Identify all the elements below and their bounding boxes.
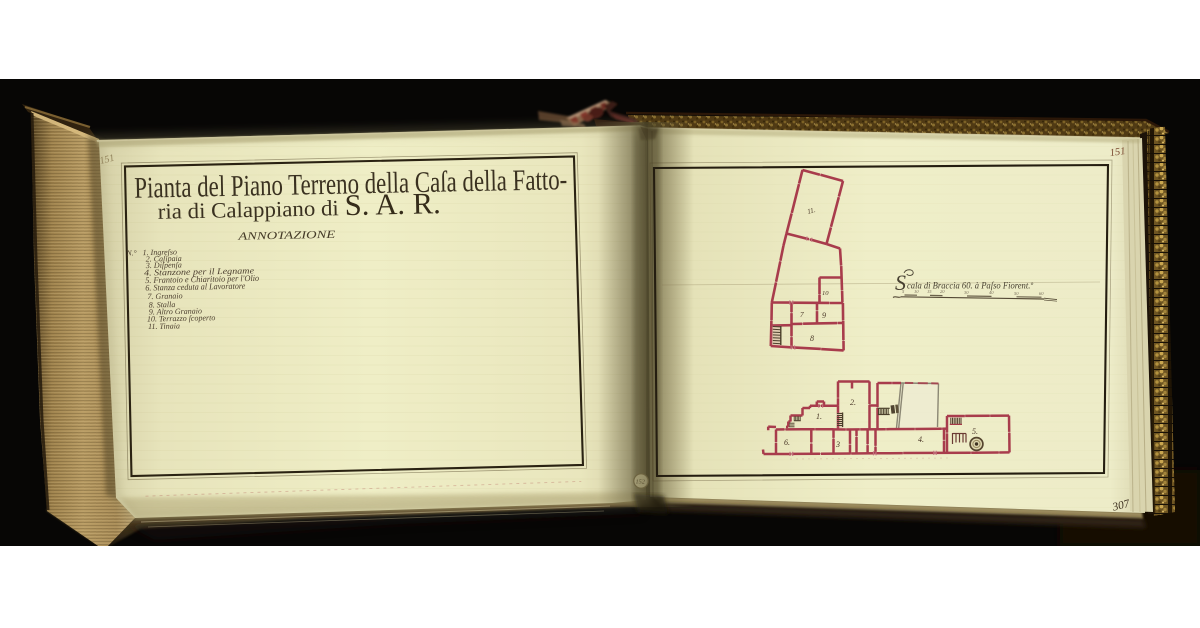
svg-text:ria di Calappiano di: ria di Calappiano di bbox=[158, 195, 339, 224]
svg-text:20: 20 bbox=[940, 289, 945, 294]
svg-text:2.: 2. bbox=[850, 398, 856, 407]
svg-text:60: 60 bbox=[1039, 291, 1044, 296]
svg-text:11. Tinaia: 11. Tinaia bbox=[148, 321, 180, 331]
svg-text:40: 40 bbox=[989, 290, 994, 295]
svg-text:8: 8 bbox=[810, 334, 814, 343]
svg-text:1.: 1. bbox=[816, 412, 822, 421]
svg-text:15: 15 bbox=[927, 289, 932, 294]
svg-text:S: S bbox=[895, 270, 906, 295]
svg-text:ANNOTAZIONE: ANNOTAZIONE bbox=[237, 229, 336, 243]
svg-text:151: 151 bbox=[1109, 146, 1126, 159]
svg-text:10: 10 bbox=[822, 290, 829, 297]
svg-text:152: 152 bbox=[636, 479, 645, 486]
svg-text:50: 50 bbox=[1014, 291, 1019, 296]
svg-text:N.°: N.° bbox=[126, 248, 137, 257]
svg-text:4.: 4. bbox=[918, 435, 924, 444]
svg-text:S. A. R.: S. A. R. bbox=[344, 187, 441, 222]
svg-text:7: 7 bbox=[800, 310, 804, 319]
svg-text:6.: 6. bbox=[784, 438, 790, 447]
svg-text:9: 9 bbox=[822, 311, 826, 320]
svg-text:5.: 5. bbox=[972, 427, 978, 436]
svg-text:6. Stanza ceduta al Lavorator: 6. Stanza ceduta al Lavoratore bbox=[145, 281, 245, 293]
svg-text:30: 30 bbox=[964, 290, 969, 295]
svg-text:10: 10 bbox=[914, 289, 919, 294]
svg-text:3: 3 bbox=[835, 440, 840, 449]
